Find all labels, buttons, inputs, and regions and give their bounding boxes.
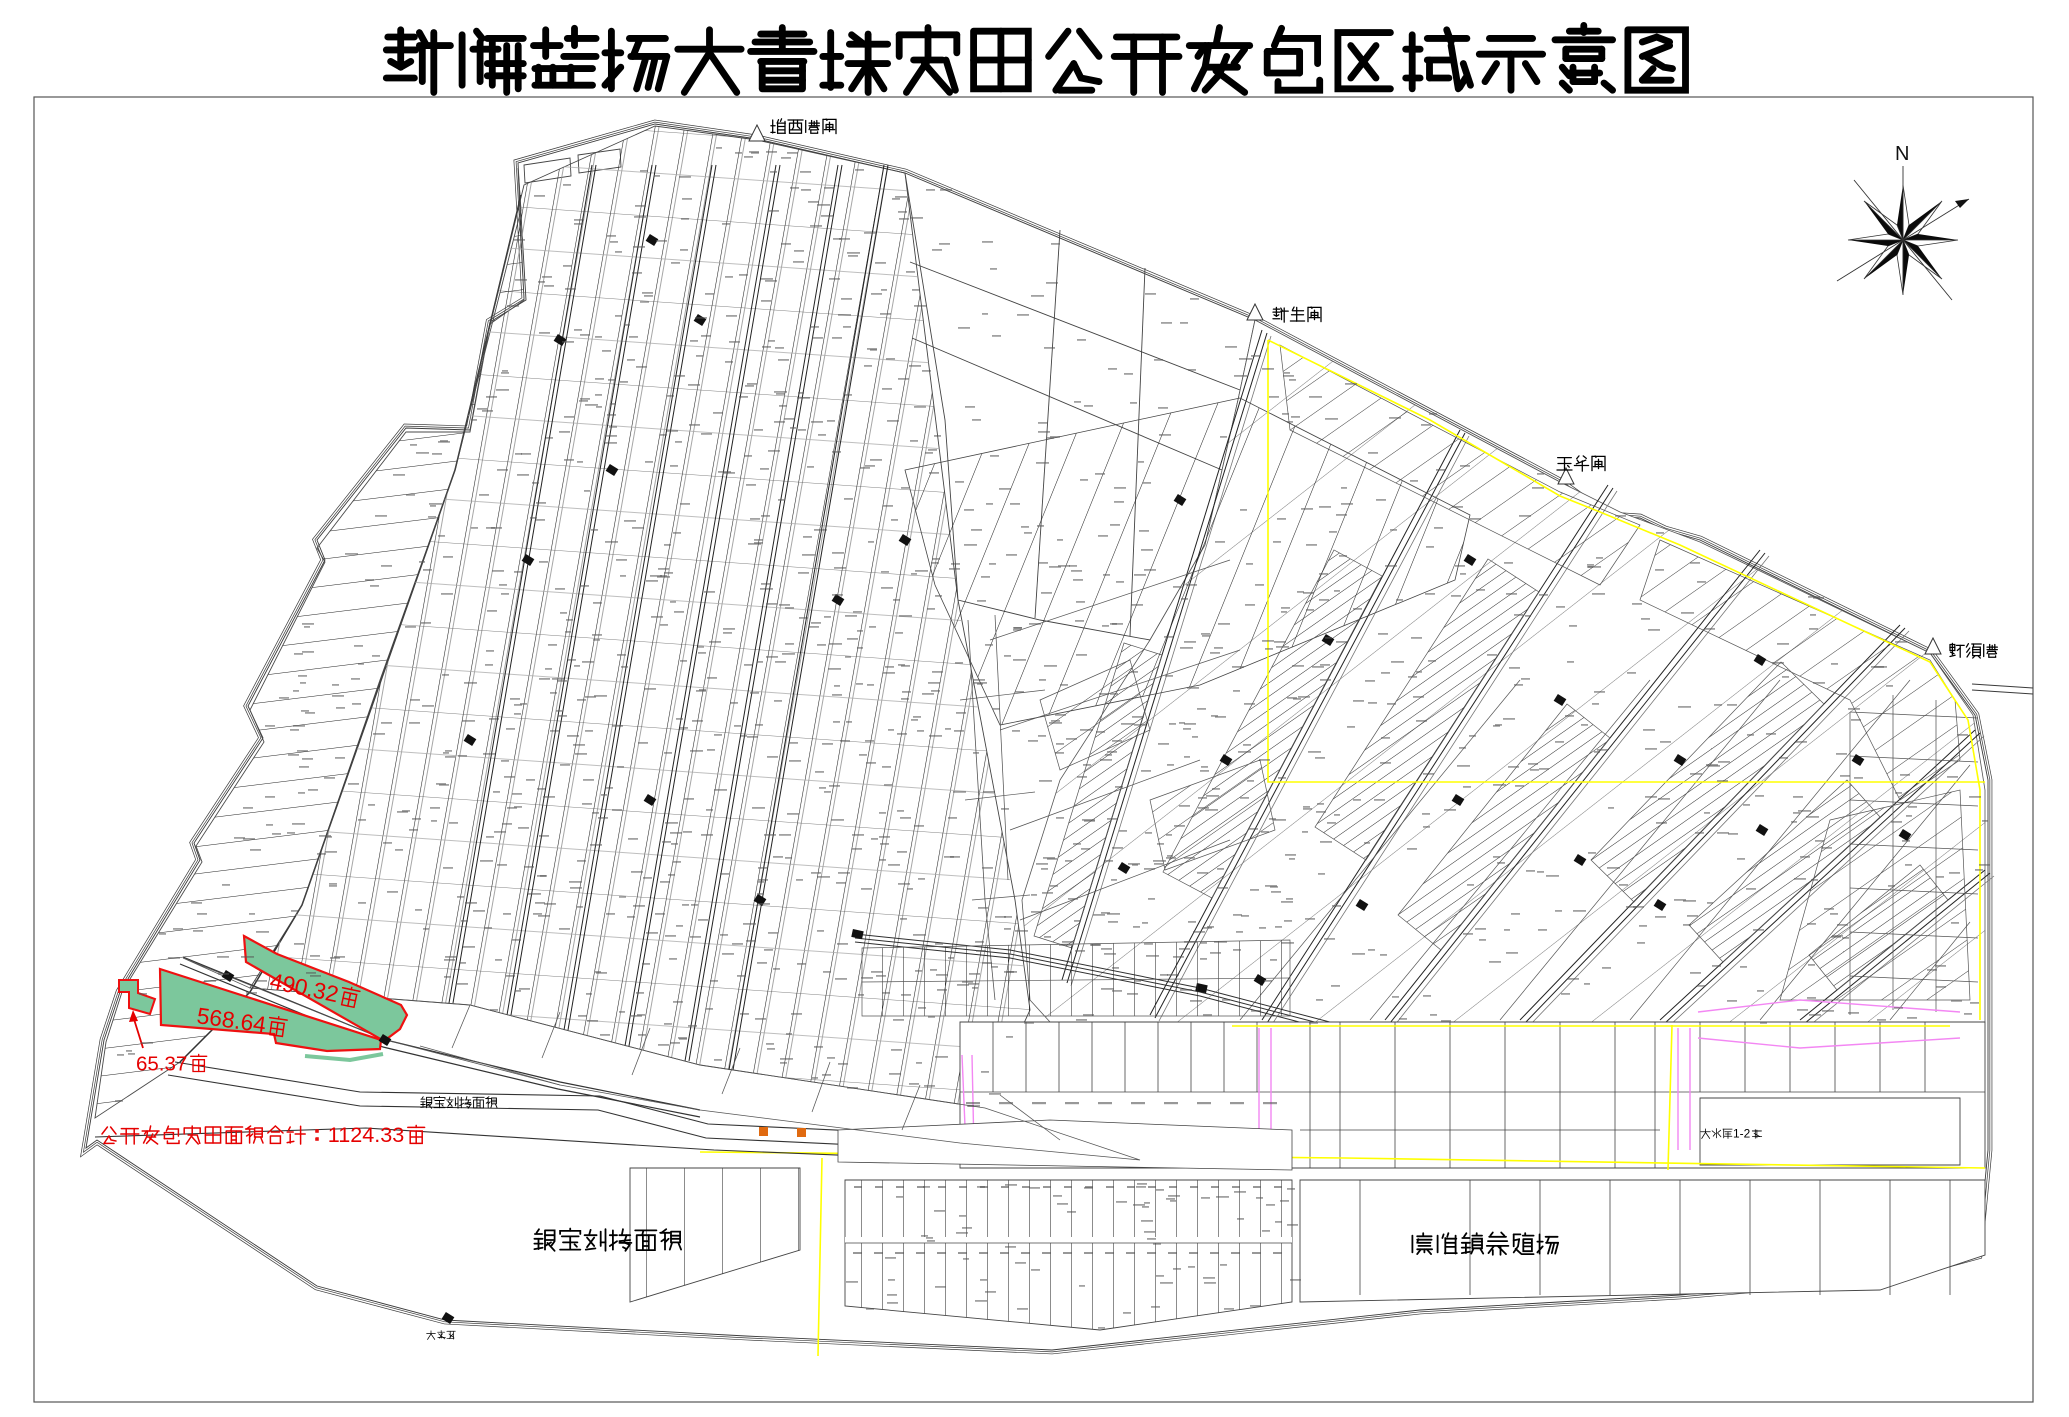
svg-text:1124.33: 1124.33 (328, 1122, 404, 1147)
svg-text:1-2: 1-2 (1733, 1127, 1751, 1141)
svg-text:N: N (1895, 143, 1909, 165)
svg-text:65.37: 65.37 (136, 1052, 187, 1075)
